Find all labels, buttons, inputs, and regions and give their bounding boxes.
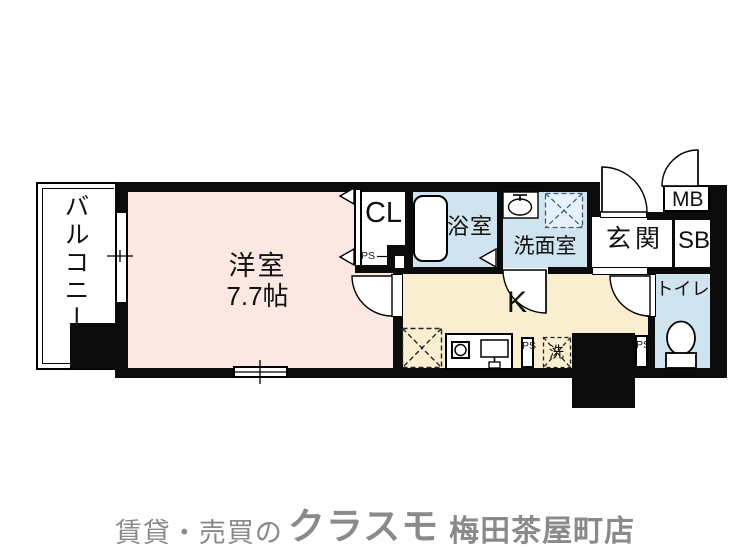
wall-band-a	[403, 267, 503, 274]
wall-closet-bath	[405, 182, 413, 270]
bathroom-label: 浴室	[447, 216, 493, 238]
entrance-label: 玄関	[606, 227, 664, 252]
kitchen-label: K	[507, 288, 527, 318]
toilet-ps-label: PS	[636, 339, 648, 351]
footer-store-name: 梅田茶屋町店	[449, 506, 635, 550]
entrance-door-threshold	[600, 211, 647, 218]
window-balcony	[115, 213, 128, 302]
shoe-box-label: SB	[678, 229, 710, 253]
balcony-label: バルコニー	[62, 193, 87, 333]
door-arc-entrance	[602, 167, 647, 212]
wall-sb-divider	[672, 217, 675, 268]
footer-prefix: 賃貸・売買の	[115, 511, 283, 550]
wall-bottom-block	[572, 333, 635, 408]
wall-bottom	[115, 368, 727, 378]
kitchen-ps-label: PS	[522, 340, 534, 352]
wall-right	[710, 185, 727, 378]
entrance-step	[592, 267, 648, 275]
wall-band-b	[548, 267, 592, 274]
wall-left-stub-top	[115, 182, 128, 213]
footer-brand-logo: クラスモ	[288, 496, 439, 550]
washroom-label: 洗面室	[501, 236, 589, 257]
western-room-size: 7.7帖	[190, 283, 325, 309]
pipe-space-notch-closet	[395, 256, 404, 268]
window-bottom	[233, 366, 288, 378]
meter-box-label: MB	[672, 189, 704, 210]
toilet-label: トイレ	[655, 280, 710, 298]
door-leaf-western	[391, 274, 403, 317]
closet-label: CL	[362, 199, 405, 228]
kitchen-washer-label: 洗	[549, 345, 564, 360]
footer-branding: 賃貸・売買の クラスモ 梅田茶屋町店	[0, 504, 750, 550]
western-room-label: 洋室	[190, 253, 325, 280]
stove-box	[451, 341, 470, 359]
wall-entrance-block	[592, 182, 600, 217]
floorplan-image: バルコニー 洋室 7.7帖 CL PS 浴室 洗面室 玄関 SB MB トイレ …	[0, 0, 750, 550]
door-arc-meter-box	[662, 150, 698, 186]
closet-ps-label: PS	[361, 251, 375, 262]
